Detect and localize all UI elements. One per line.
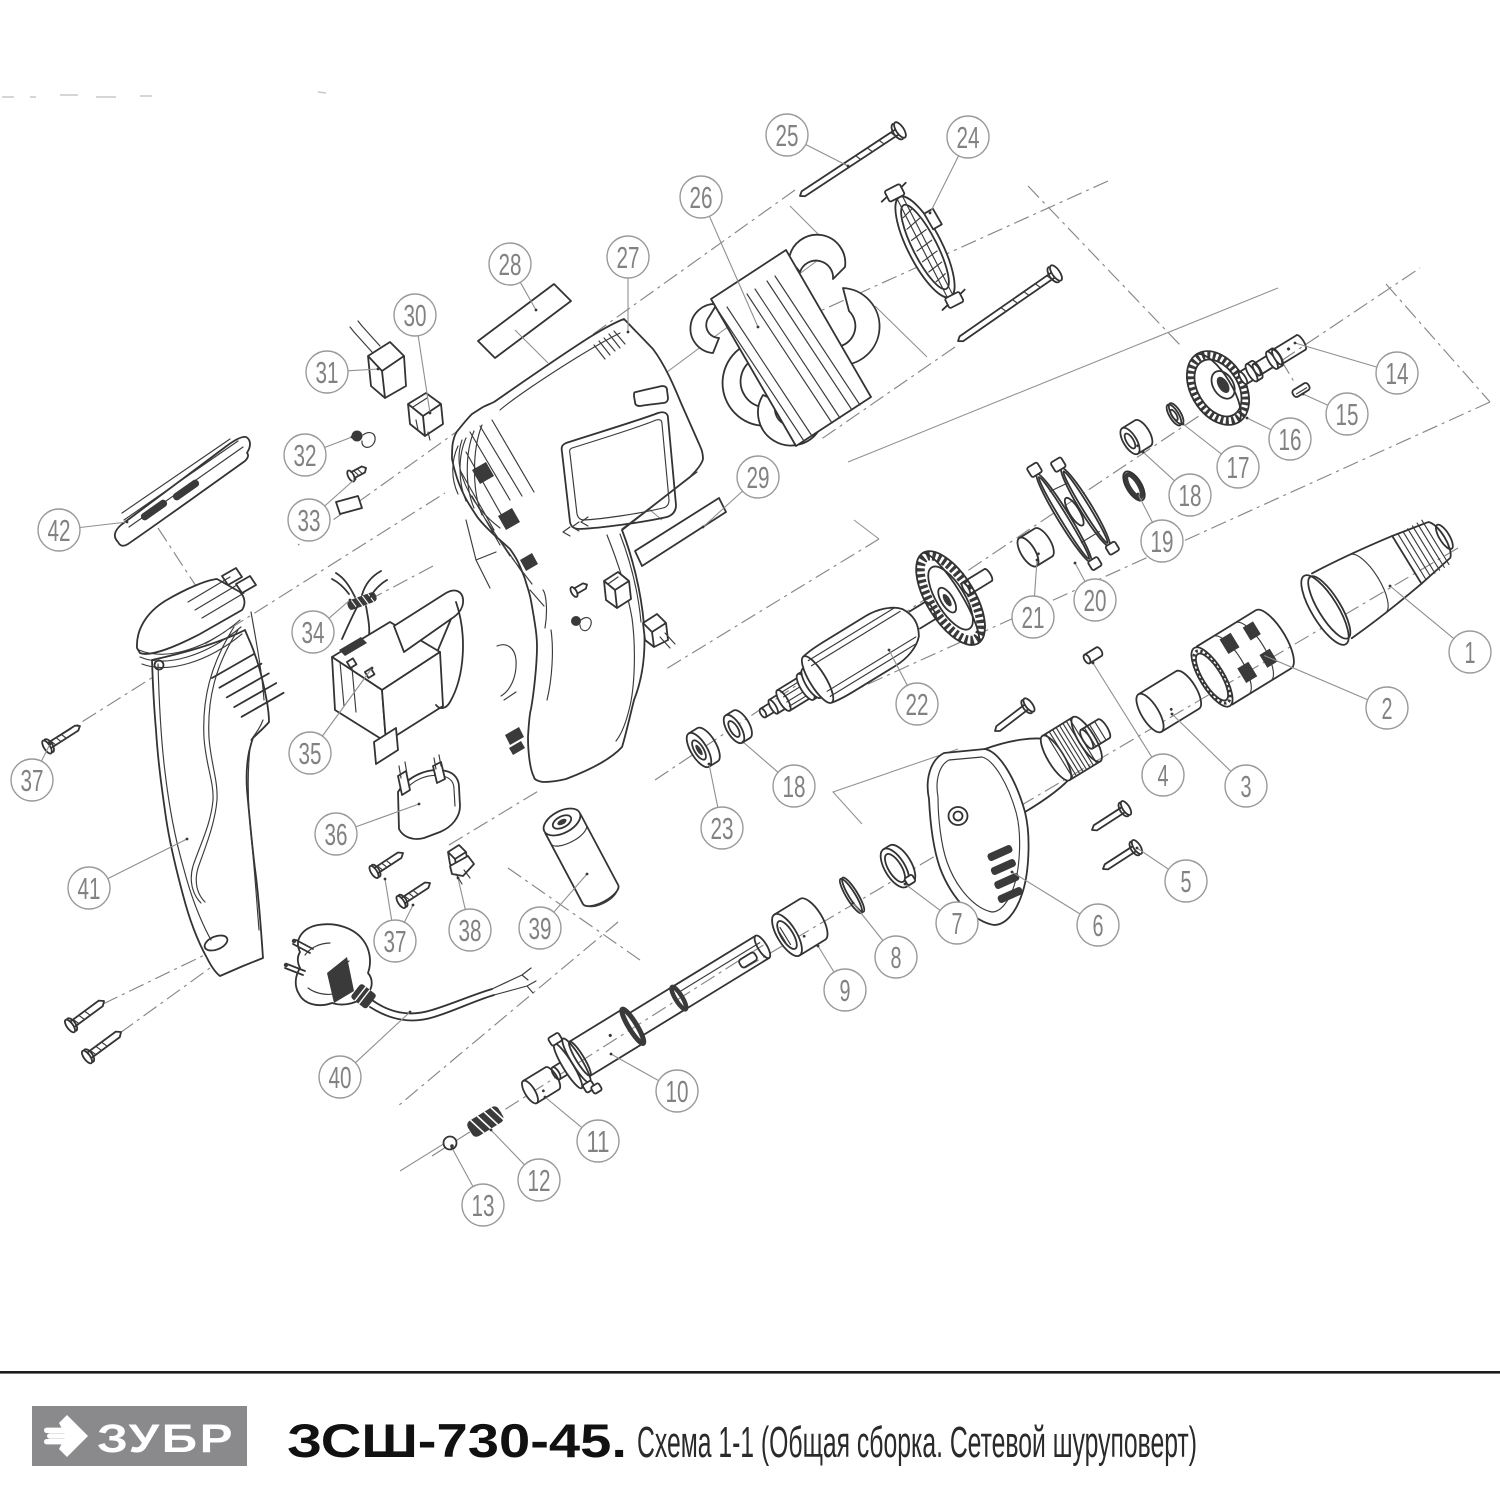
svg-text:18: 18	[783, 769, 806, 804]
svg-text:10: 10	[666, 1074, 689, 1109]
svg-text:5: 5	[1181, 864, 1192, 899]
svg-text:37: 37	[21, 763, 44, 798]
svg-text:26: 26	[690, 180, 713, 215]
svg-text:31: 31	[316, 355, 339, 390]
svg-text:16: 16	[1279, 422, 1302, 457]
svg-text:15: 15	[1336, 397, 1359, 432]
svg-text:25: 25	[776, 118, 799, 153]
svg-text:32: 32	[294, 438, 317, 473]
svg-text:38: 38	[459, 913, 482, 948]
svg-text:8: 8	[891, 940, 902, 975]
svg-text:22: 22	[906, 687, 929, 722]
svg-text:41: 41	[78, 871, 101, 906]
svg-text:37: 37	[384, 924, 407, 959]
svg-text:24: 24	[957, 120, 980, 155]
svg-text:30: 30	[404, 298, 427, 333]
svg-text:28: 28	[499, 247, 522, 282]
svg-text:2: 2	[1382, 691, 1393, 726]
svg-text:34: 34	[302, 615, 325, 650]
svg-text:4: 4	[1158, 758, 1169, 793]
svg-text:7: 7	[952, 906, 963, 941]
svg-text:12: 12	[528, 1163, 551, 1198]
svg-text:3: 3	[1241, 769, 1252, 804]
svg-text:14: 14	[1386, 356, 1409, 391]
svg-text:ЗСШ-730-45.: ЗСШ-730-45.	[287, 1414, 627, 1467]
svg-text:19: 19	[1151, 524, 1174, 559]
svg-text:40: 40	[329, 1060, 352, 1095]
svg-text:ЗУБР: ЗУБР	[97, 1417, 235, 1461]
svg-text:6: 6	[1093, 908, 1104, 943]
svg-text:21: 21	[1022, 600, 1045, 635]
svg-text:39: 39	[529, 911, 552, 946]
svg-text:36: 36	[325, 817, 348, 852]
svg-text:33: 33	[298, 503, 321, 538]
svg-text:13: 13	[472, 1188, 495, 1223]
svg-text:42: 42	[48, 513, 71, 548]
svg-text:11: 11	[587, 1124, 610, 1159]
svg-text:27: 27	[617, 240, 640, 275]
svg-text:29: 29	[747, 460, 770, 495]
svg-text:35: 35	[299, 736, 322, 771]
svg-text:1: 1	[1465, 635, 1476, 670]
svg-text:17: 17	[1227, 450, 1250, 485]
svg-text:18: 18	[1179, 478, 1202, 513]
svg-text:23: 23	[711, 811, 734, 846]
svg-text:9: 9	[840, 973, 851, 1008]
svg-text:Схема 1-1 (Общая сборка. Сетев: Схема 1-1 (Общая сборка. Сетевой шурупов…	[637, 1418, 1197, 1467]
svg-text:20: 20	[1084, 583, 1107, 618]
